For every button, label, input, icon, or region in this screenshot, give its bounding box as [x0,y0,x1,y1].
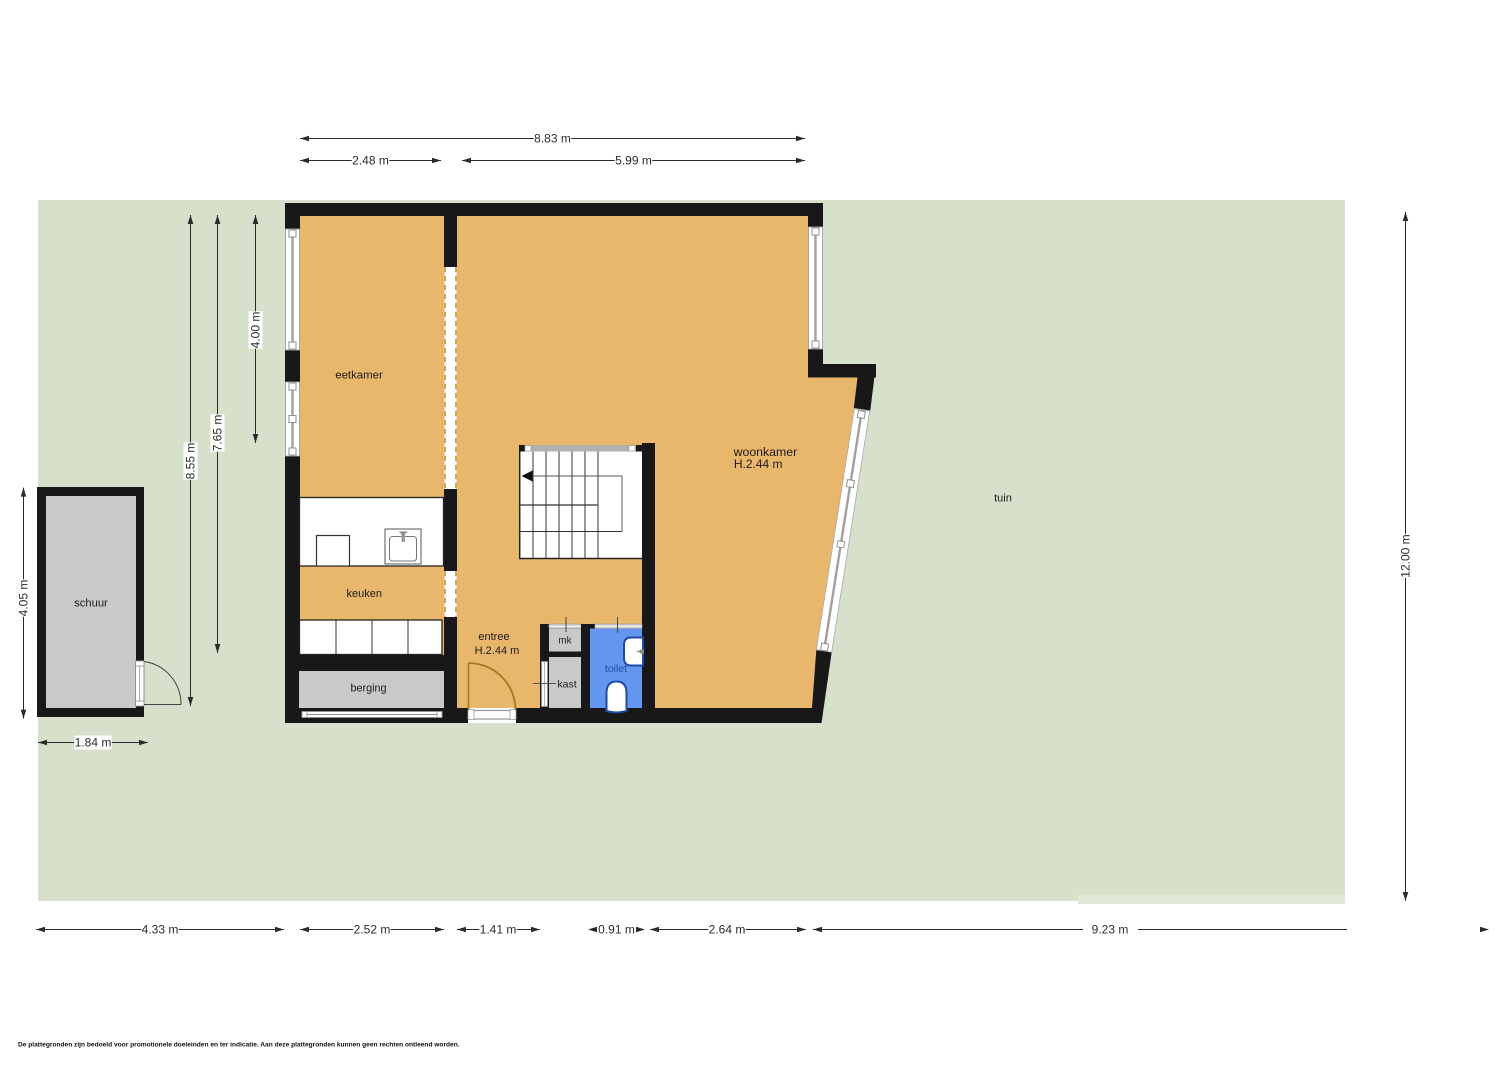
svg-text:H.2.44 m: H.2.44 m [475,645,520,657]
svg-text:1.84 m: 1.84 m [75,736,112,750]
svg-text:H.2.44 m: H.2.44 m [734,457,783,471]
svg-text:12.00 m: 12.00 m [1399,534,1413,577]
svg-text:0.91 m: 0.91 m [598,923,635,937]
svg-text:8.83 m: 8.83 m [534,132,571,146]
svg-text:7.65 m: 7.65 m [211,415,225,452]
svg-text:2.48 m: 2.48 m [352,154,389,168]
svg-text:schuur: schuur [74,598,108,610]
svg-text:2.64 m: 2.64 m [709,923,746,937]
svg-text:1.41 m: 1.41 m [480,923,517,937]
svg-text:2.52 m: 2.52 m [354,923,391,937]
svg-text:mk: mk [558,636,572,647]
svg-text:4.33 m: 4.33 m [142,923,179,937]
svg-text:5.99 m: 5.99 m [615,154,652,168]
svg-text:toilet: toilet [605,663,627,675]
svg-text:kast: kast [557,679,576,691]
svg-text:berging: berging [350,682,386,694]
svg-text:8.55 m: 8.55 m [184,443,198,480]
svg-text:De plattegronden zijn bedoeld: De plattegronden zijn bedoeld voor promo… [18,1042,460,1049]
svg-text:9.23 m: 9.23 m [1092,923,1129,937]
svg-text:keuken: keuken [347,588,382,600]
svg-text:4.00 m: 4.00 m [249,312,263,349]
svg-text:tuin: tuin [994,493,1012,505]
svg-text:entree: entree [478,631,509,643]
svg-text:eetkamer: eetkamer [335,370,383,382]
svg-text:4.05 m: 4.05 m [17,580,31,617]
